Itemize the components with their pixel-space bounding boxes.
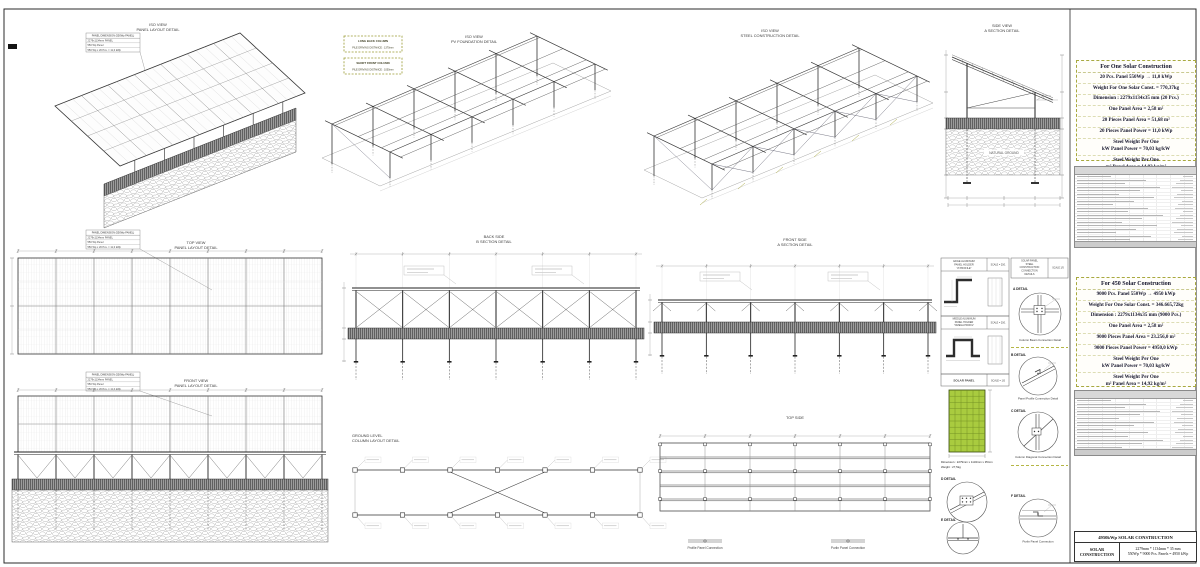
svg-text:A SECTION DETAIL: A SECTION DETAIL: [777, 242, 813, 247]
spec-line: 9000 Pcs. Panel 550Wp → 4950 kWp: [1078, 290, 1194, 301]
detail-column: EDGE ALUMINUMPANEL HOLDER"Z PROFILE"SCAL…: [941, 258, 1068, 554]
spec-line: Steel Weight Per One m² Panel Area = 14,…: [1078, 373, 1194, 390]
view-iso-foundation: ISO VIEWPV FOUNDATION DETAILLONG BACK CO…: [322, 33, 611, 191]
spec-line: 20 Pcs. Panel 550Wp → 11,0 kWp: [1078, 73, 1194, 84]
svg-text:E DETAIL: E DETAIL: [941, 518, 956, 522]
view-back-side-section: BACK SIDEB SECTION DETAIL: [342, 234, 644, 380]
svg-text:SOLAR PANEL: SOLAR PANEL: [953, 379, 974, 383]
view-front-panel-layout: FRONT VIEWPANEL LAYOUT DETAILPANEL DIMEN…: [12, 372, 328, 542]
material-table-one-construction: [1074, 166, 1197, 248]
svg-text:SCALE = 20/1: SCALE = 20/1: [991, 264, 1007, 267]
svg-text:SHORT FRONT COLUMN: SHORT FRONT COLUMN: [356, 61, 389, 65]
view-top-side-plan: TOP SIDEProfile Panel ConnectionPurlin P…: [659, 415, 932, 550]
svg-text:B DETAIL: B DETAIL: [1011, 353, 1026, 357]
svg-text:C DETAIL: C DETAIL: [1011, 409, 1026, 413]
title-block-name: SOLAR CONSTRUCTION: [1075, 543, 1120, 561]
spec-line: One Panel Area = 2,58 m²: [1078, 323, 1194, 334]
svg-text:PILE DRIVING DISTANCE : 1370mm: PILE DRIVING DISTANCE : 1370mm: [352, 46, 394, 49]
svg-text:PANEL DIMENSION (550Wp PANEL): PANEL DIMENSION (550Wp PANEL): [92, 34, 135, 38]
view-top-panel-layout: TOP VIEWPANEL LAYOUT DETAILPANEL DIMENSI…: [10, 230, 323, 354]
svg-text:SCALE 1/5: SCALE 1/5: [1052, 267, 1064, 270]
svg-text:A SECTION DETAIL: A SECTION DETAIL: [984, 28, 1020, 33]
spec-line: 20 Pieces Panel Area = 51,68 m²: [1078, 117, 1194, 128]
svg-text:LONG BACK COLUMN: LONG BACK COLUMN: [358, 39, 388, 43]
title-block-project: 4950kWp SOLAR CONSTRUCTION: [1075, 532, 1196, 543]
svg-text:2279x1134mm PANEL: 2279x1134mm PANEL: [88, 236, 114, 240]
drawing-canvas: ISO VIEWPANEL LAYOUT DETAILPANEL DIMENSI…: [0, 0, 1200, 567]
title-block-specs: 2279mm * 1134mm * 35 mm 550Wp * 9000 Pcs…: [1120, 543, 1196, 561]
view-iso-panel-layout: ISO VIEWPANEL LAYOUT DETAILPANEL DIMENSI…: [55, 22, 305, 228]
svg-text:NATURAL GROUND: NATURAL GROUND: [989, 151, 1019, 155]
svg-text:B SECTION DETAIL: B SECTION DETAIL: [476, 239, 512, 244]
svg-text:2279x1134mm PANEL: 2279x1134mm PANEL: [88, 39, 114, 43]
spec-line: Steel Weight Per One kW Panel Power = 70…: [1078, 139, 1194, 157]
svg-text:2279x1134mm PANEL: 2279x1134mm PANEL: [88, 378, 114, 382]
svg-text:Dimension : 2279mm x 1134mm x: Dimension : 2279mm x 1134mm x 35mm: [941, 460, 993, 464]
view-front-side-section: FRONT SIDEA SECTION DETAIL: [648, 237, 937, 374]
svg-text:TOP SIDE: TOP SIDE: [786, 415, 804, 420]
svg-text:STEEL CONSTRUCTION DETAIL: STEEL CONSTRUCTION DETAIL: [740, 33, 800, 38]
spec-line: Dimension : 2279x1134x35 mm (20 Pcs.): [1078, 95, 1194, 106]
svg-text:PILE DRIVING DISTANCE : 1050mm: PILE DRIVING DISTANCE : 1050mm: [352, 68, 394, 71]
svg-text:Column Beam Connection Detail: Column Beam Connection Detail: [1019, 338, 1061, 342]
svg-text:A DETAIL: A DETAIL: [1013, 287, 1028, 291]
svg-text:SCALE = 20/1: SCALE = 20/1: [991, 322, 1007, 325]
svg-text:Weight : 27,5kg: Weight : 27,5kg: [941, 465, 961, 469]
svg-text:PANEL LAYOUT DETAIL: PANEL LAYOUT DETAIL: [174, 245, 218, 250]
spec-one-title: For One Solar Construction: [1078, 63, 1194, 73]
svg-text:"Z PROFILE": "Z PROFILE": [957, 266, 972, 270]
svg-text:550 Wp x 20 Pcs. = 11,0 kWp: 550 Wp x 20 Pcs. = 11,0 kWp: [88, 48, 122, 52]
spec-one-lines: 20 Pcs. Panel 550Wp → 11,0 kWpWeight For…: [1078, 73, 1194, 173]
svg-text:PV FOUNDATION DETAIL: PV FOUNDATION DETAIL: [451, 39, 498, 44]
svg-text:Profile Panel Connection: Profile Panel Connection: [687, 546, 722, 550]
spec-box-450-construction: For 450 Solar Construction 9000 Pcs. Pan…: [1076, 277, 1196, 387]
spec-box-one-construction: For One Solar Construction 20 Pcs. Panel…: [1076, 60, 1196, 161]
spec-line: Weight For One Solar Const. = 770,37kg: [1078, 84, 1194, 95]
svg-text:Purlin Panel Connection: Purlin Panel Connection: [831, 546, 865, 550]
title-block-power: 550Wp * 9000 Pcs. Panels = 4950 kWp: [1120, 552, 1196, 558]
svg-text:Purlin Panel Connection: Purlin Panel Connection: [1022, 540, 1053, 544]
svg-text:D DETAIL: D DETAIL: [941, 477, 956, 481]
spec-line: 9000 Pieces Panel Area = 23.256,0 m²: [1078, 334, 1194, 345]
spec-line: Dimension : 2279x1134x35 mm (9000 Pcs.): [1078, 312, 1194, 323]
spec-line: Steel Weight Per One kW Panel Power = 70…: [1078, 356, 1194, 374]
svg-text:COLUMN LAYOUT DETAIL: COLUMN LAYOUT DETAIL: [352, 438, 400, 443]
spec-all-lines: 9000 Pcs. Panel 550Wp → 4950 kWpWeight F…: [1078, 290, 1194, 390]
view-ground-level-plan: GROUND LEVELCOLUMN LAYOUT DETAIL: [352, 433, 666, 529]
view-side-section: SIDE VIEWA SECTION DETAILNATURAL GROUND: [944, 23, 1064, 207]
svg-text:550 Wp Panel: 550 Wp Panel: [88, 382, 104, 386]
svg-text:550 Wp Panel: 550 Wp Panel: [88, 240, 104, 244]
cad-drawing-sheet: ISO VIEWPANEL LAYOUT DETAILPANEL DIMENSI…: [0, 0, 1200, 567]
spec-line: Weight For One Solar Const. = 346.665,72…: [1078, 301, 1194, 312]
material-table-450-construction: [1074, 390, 1197, 456]
svg-text:PANEL DIMENSION (550Wp PANEL): PANEL DIMENSION (550Wp PANEL): [92, 373, 135, 377]
svg-text:F DETAIL: F DETAIL: [1011, 494, 1026, 498]
spec-line: 9000 Pieces Panel Power = 4950,0 kWp: [1078, 345, 1194, 356]
spec-all-title: For 450 Solar Construction: [1078, 280, 1194, 290]
svg-text:550 Wp Panel: 550 Wp Panel: [88, 43, 104, 47]
svg-text:PANEL LAYOUT DETAIL: PANEL LAYOUT DETAIL: [174, 383, 218, 388]
view-iso-steel-construction: ISO VIEWSTEEL CONSTRUCTION DETAIL: [644, 28, 933, 205]
svg-text:Column Diagonal Connection Det: Column Diagonal Connection Detail: [1015, 455, 1061, 459]
svg-text:SCALE = 1/5: SCALE = 1/5: [991, 380, 1006, 383]
svg-text:PANEL DIMENSION (550Wp PANEL): PANEL DIMENSION (550Wp PANEL): [92, 231, 135, 235]
spec-line: 20 Pieces Panel Power = 11,0 kWp: [1078, 128, 1194, 139]
title-block: 4950kWp SOLAR CONSTRUCTION SOLAR CONSTRU…: [1074, 531, 1197, 562]
svg-text:PANEL LAYOUT DETAIL: PANEL LAYOUT DETAIL: [136, 27, 180, 32]
svg-text:"OMEGA PROFIL": "OMEGA PROFIL": [954, 324, 974, 327]
svg-text:550 Wp x 20 Pcs. = 11,0 kWp: 550 Wp x 20 Pcs. = 11,0 kWp: [88, 245, 122, 249]
spec-line: One Panel Area = 2,58 m²: [1078, 106, 1194, 117]
svg-text:Panel Profile Connection Detai: Panel Profile Connection Detail: [1018, 397, 1058, 401]
svg-text:550 Wp x 20 Pcs. = 11,0 kWp: 550 Wp x 20 Pcs. = 11,0 kWp: [88, 387, 122, 391]
svg-text:DETAILS: DETAILS: [1025, 273, 1035, 276]
